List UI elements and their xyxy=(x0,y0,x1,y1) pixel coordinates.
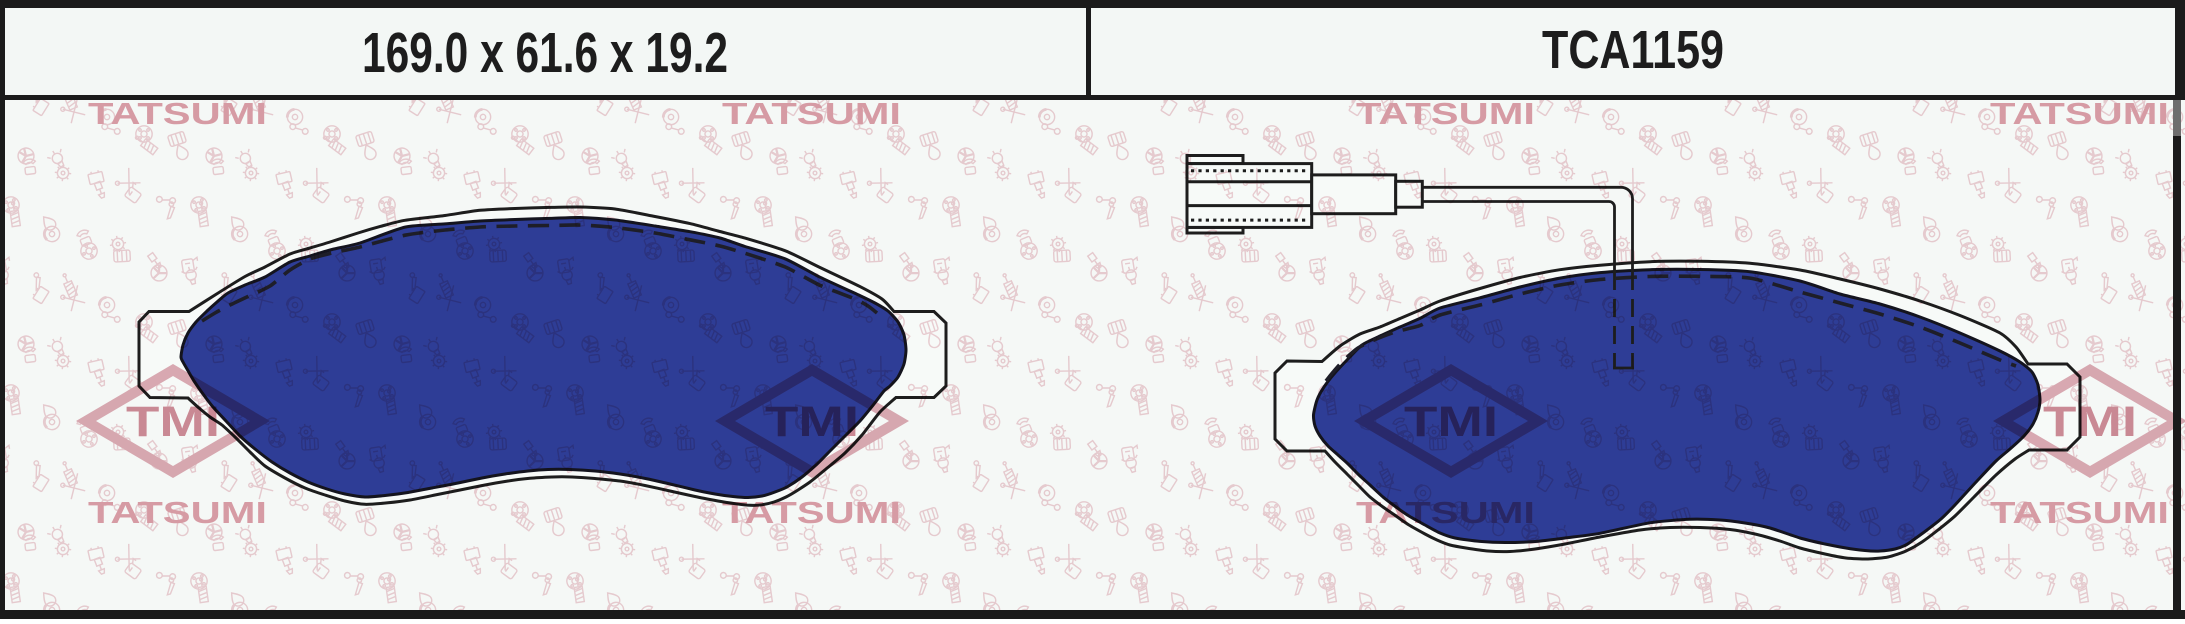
svg-text:TATSUMI: TATSUMI xyxy=(1990,495,2169,530)
svg-text:TATSUMI: TATSUMI xyxy=(1356,495,1535,530)
svg-text:TATSUMI: TATSUMI xyxy=(722,495,901,530)
svg-text:TMI: TMI xyxy=(2043,398,2137,446)
svg-text:TMI: TMI xyxy=(1404,398,1498,446)
svg-text:169.0 x 61.6 x 19.2: 169.0 x 61.6 x 19.2 xyxy=(362,21,728,85)
svg-text:TCA1159: TCA1159 xyxy=(1542,20,1724,80)
svg-text:TATSUMI: TATSUMI xyxy=(722,96,901,131)
svg-text:TATSUMI: TATSUMI xyxy=(88,96,267,131)
svg-text:TATSUMI: TATSUMI xyxy=(1990,96,2169,131)
svg-text:TMI: TMI xyxy=(126,398,220,446)
svg-text:TATSUMI: TATSUMI xyxy=(1356,96,1535,131)
svg-text:TMI: TMI xyxy=(765,398,859,446)
svg-text:TATSUMI: TATSUMI xyxy=(88,495,267,530)
